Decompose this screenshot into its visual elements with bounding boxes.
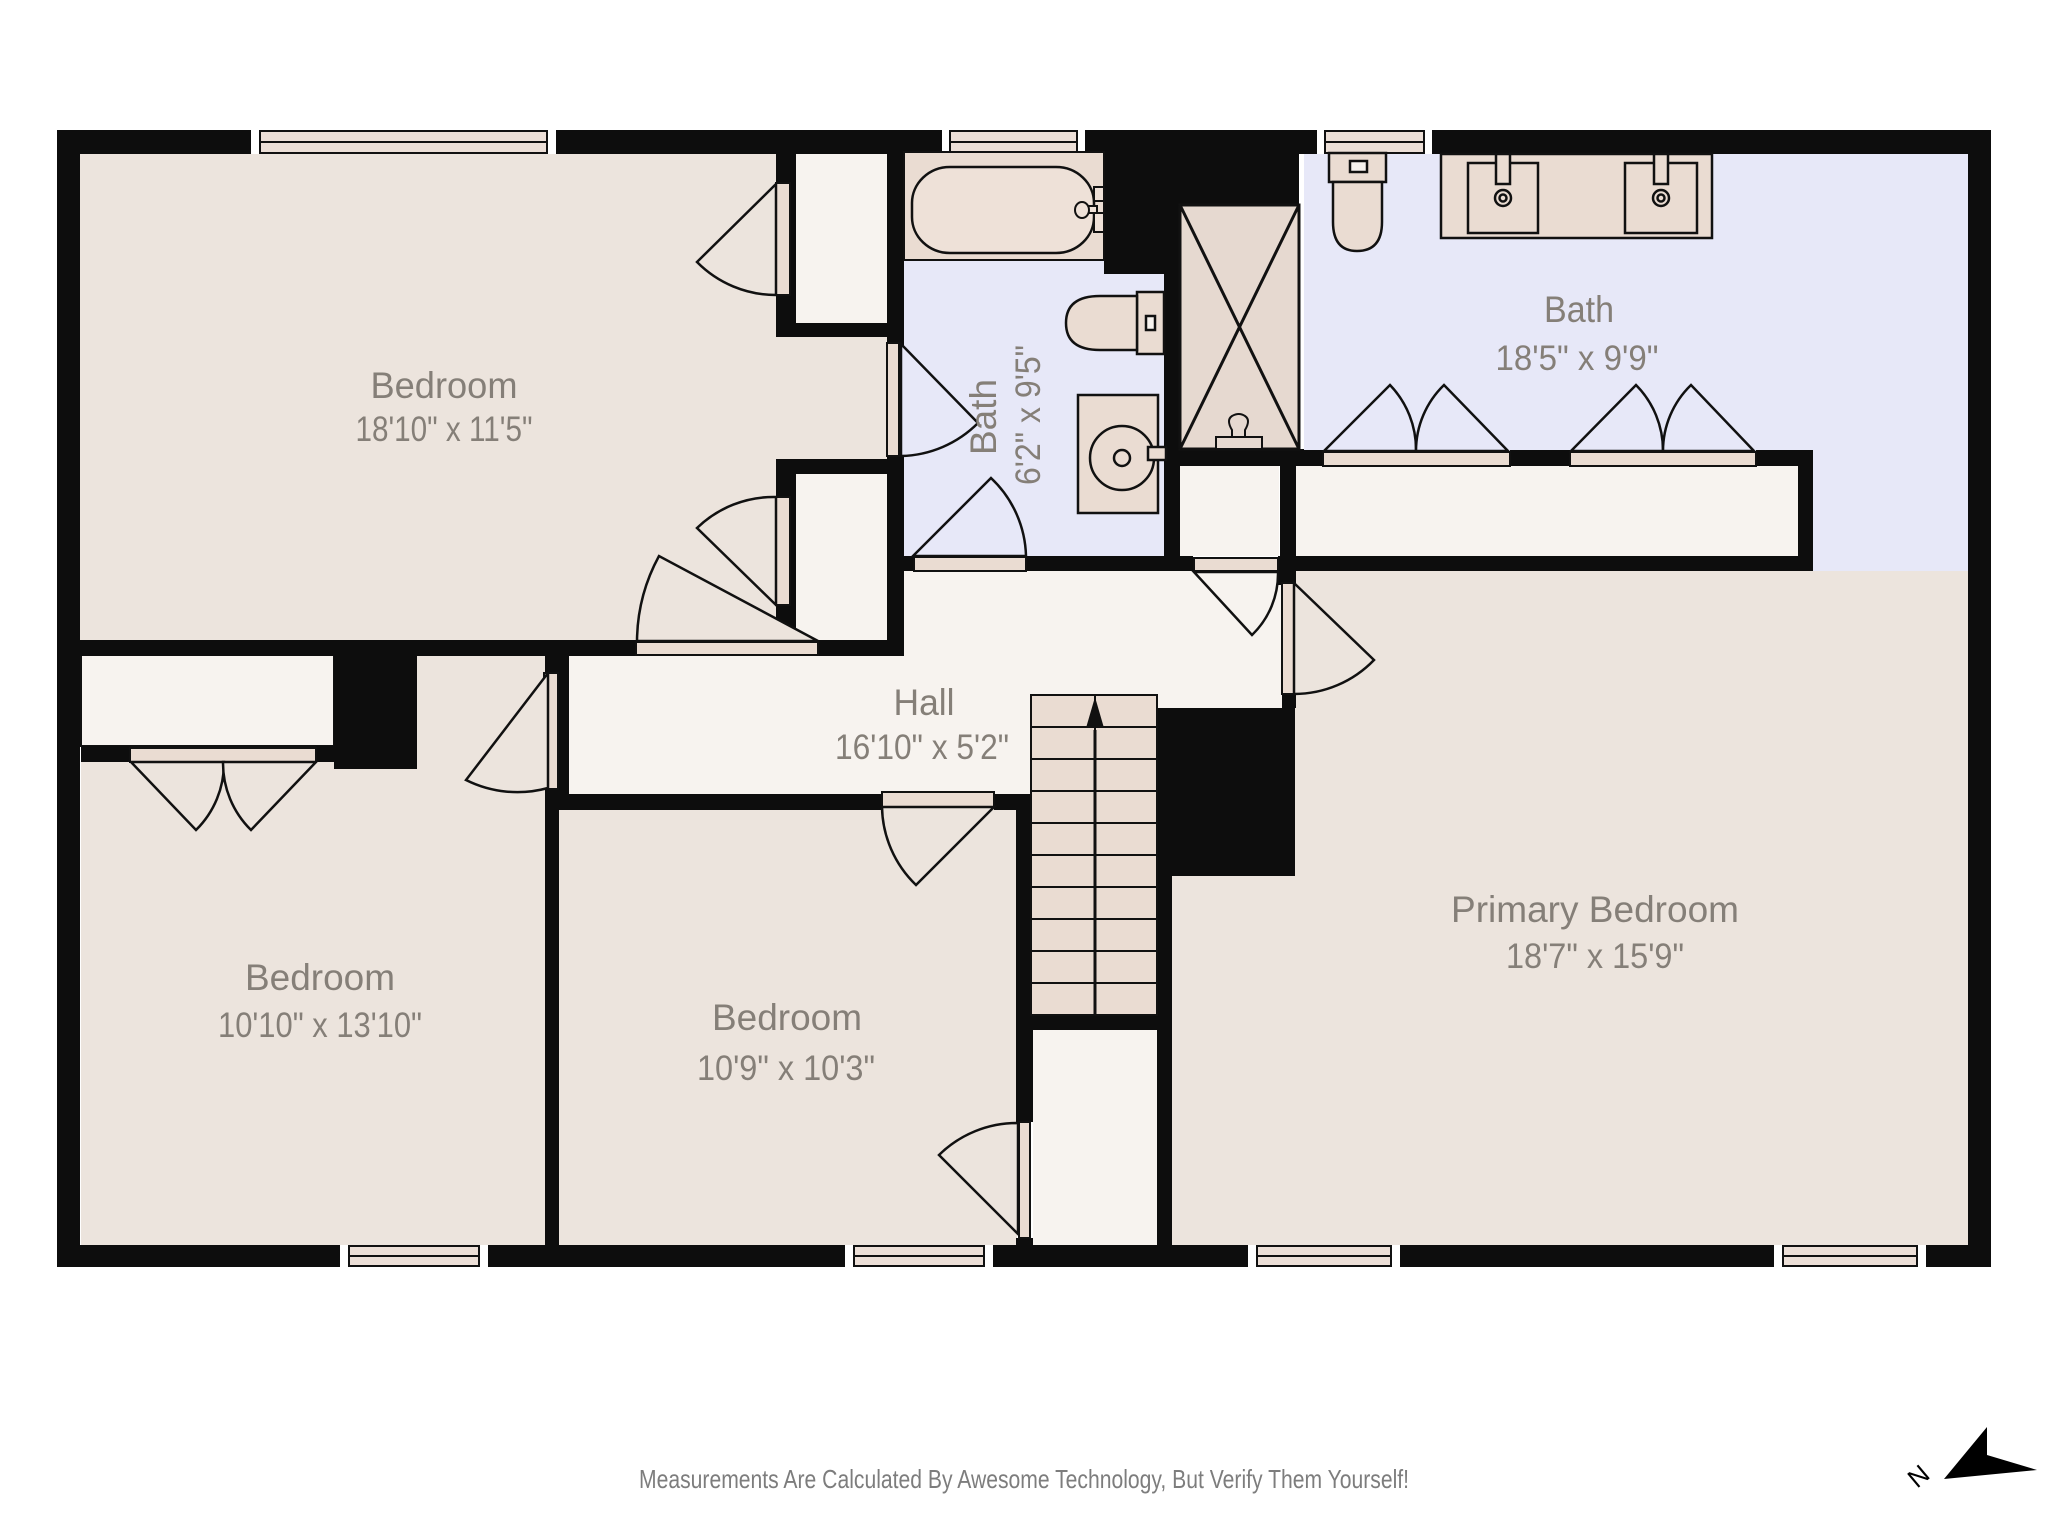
svg-text:10'10" x 13'10": 10'10" x 13'10" — [218, 1006, 422, 1045]
svg-text:Bath: Bath — [963, 379, 1004, 455]
svg-text:18'7" x 15'9": 18'7" x 15'9" — [1506, 937, 1684, 976]
svg-text:Bath: Bath — [1544, 289, 1614, 330]
svg-text:Bedroom: Bedroom — [371, 365, 518, 406]
svg-text:10'9" x 10'3": 10'9" x 10'3" — [697, 1049, 875, 1088]
svg-text:18'5" x 9'9": 18'5" x 9'9" — [1496, 339, 1659, 378]
svg-text:16'10" x 5'2": 16'10" x 5'2" — [835, 728, 1009, 767]
svg-text:Bedroom: Bedroom — [712, 997, 862, 1038]
svg-text:6'2" x 9'5": 6'2" x 9'5" — [1009, 345, 1048, 485]
svg-text:Hall: Hall — [894, 682, 955, 723]
svg-text:Measurements Are Calculated By: Measurements Are Calculated By Awesome T… — [639, 1464, 1409, 1494]
svg-text:Bedroom: Bedroom — [245, 957, 395, 998]
svg-text:Primary Bedroom: Primary Bedroom — [1451, 889, 1739, 930]
svg-text:18'10" x 11'5": 18'10" x 11'5" — [356, 410, 533, 449]
